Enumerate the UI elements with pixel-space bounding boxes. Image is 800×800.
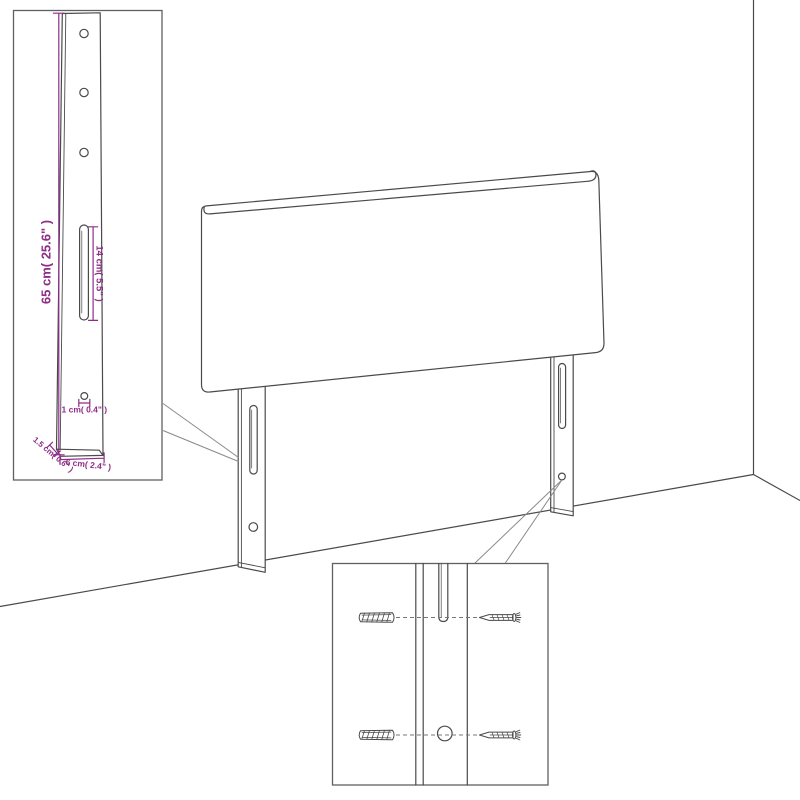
left-leg (238, 378, 265, 572)
product-diagram: 65 cm( 25.6" ) 14 cm( 5.5" ) 1 cm( 0.4" … (0, 0, 800, 800)
inset-frame (333, 564, 549, 786)
floor-line-right (754, 475, 800, 501)
inset-leg-detail-panel: 65 cm( 25.6" ) 14 cm( 5.5" ) 1 cm( 0.4" … (14, 11, 163, 481)
leader-line (163, 431, 239, 462)
leader-line (505, 480, 562, 564)
leader-line (163, 404, 239, 458)
dimension-label-hole-diameter: 1 cm( 0.4" ) (61, 405, 107, 415)
diagram-canvas: 65 cm( 25.6" ) 14 cm( 5.5" ) 1 cm( 0.4" … (0, 0, 800, 800)
callout-leader-lines (163, 404, 562, 564)
headboard-panel (202, 171, 605, 392)
leader-line (475, 480, 562, 564)
hardware-detail-panel (333, 564, 549, 786)
dimension-label-height: 65 cm( 25.6" ) (39, 220, 54, 304)
right-leg (551, 342, 574, 516)
dimension-label-slot-height: 14 cm( 5.5" ) (94, 245, 105, 301)
